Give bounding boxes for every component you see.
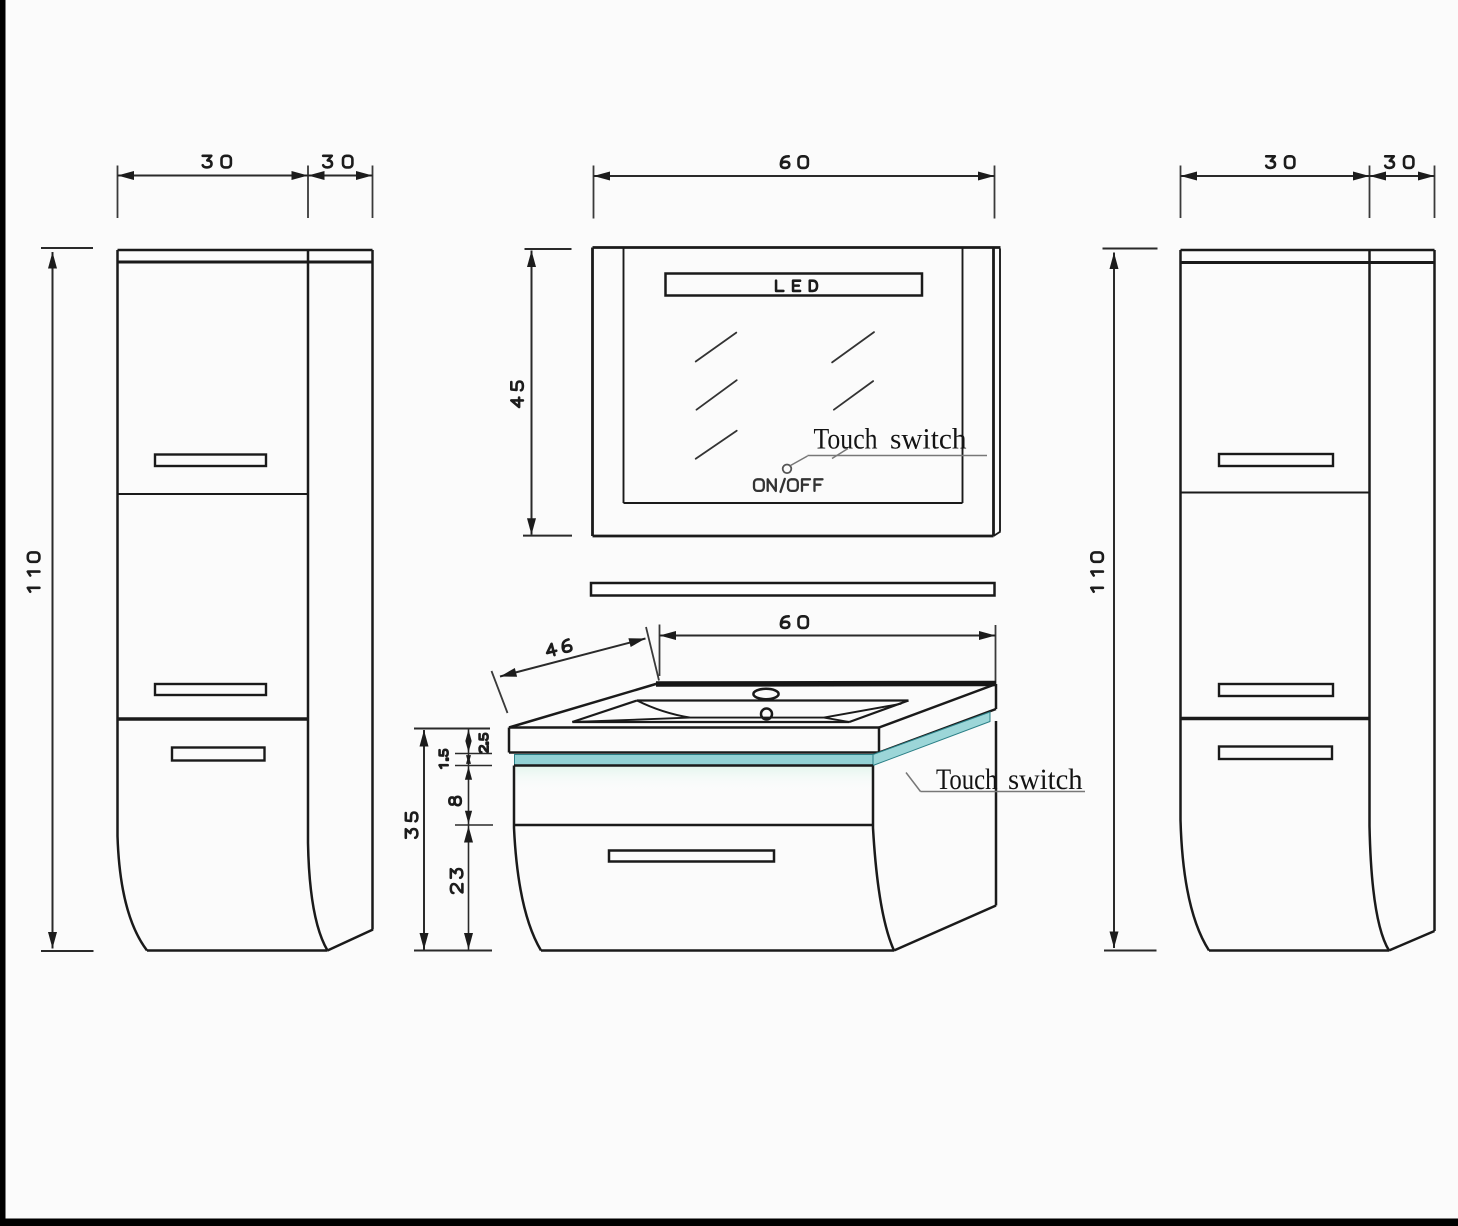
svg-text:switch: switch [1008,763,1083,796]
svg-text:Touch: Touch [814,423,878,456]
svg-text:Touch: Touch [936,763,998,796]
svg-text:switch: switch [890,423,967,456]
